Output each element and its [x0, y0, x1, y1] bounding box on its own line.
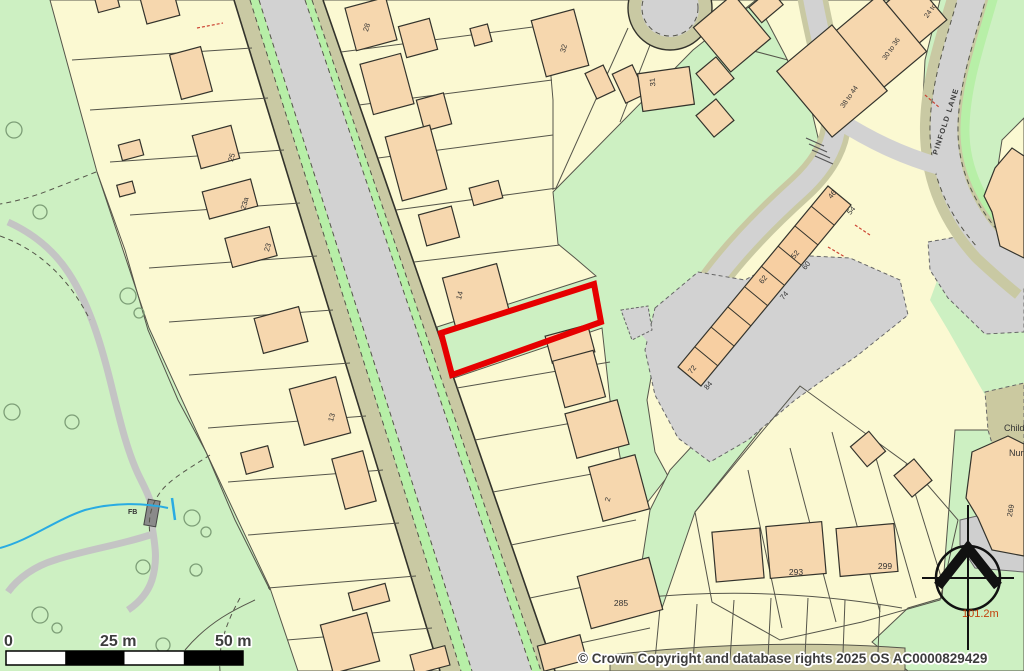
house-number: 285 [614, 598, 628, 608]
copyright-text: © Crown Copyright and database rights 20… [578, 651, 987, 666]
map-canvas[interactable]: 28 32 31 24 to 30 to 36 38 to 44 46 54 5… [0, 0, 1024, 671]
house-number: 31 [648, 78, 658, 87]
scale-label-50m: 50 m [215, 633, 251, 650]
footbridge-label: FB [128, 509, 137, 516]
spot-height-label: 101.2m [962, 608, 999, 620]
house-number: 299 [878, 561, 892, 571]
nursery-label-line1: Children's [1004, 423, 1024, 433]
house-number: 293 [789, 567, 803, 577]
nursery-label-line2: Nursery [1009, 448, 1024, 458]
scale-label-25m: 25 m [100, 633, 136, 650]
scale-label-0: 0 [4, 633, 13, 650]
